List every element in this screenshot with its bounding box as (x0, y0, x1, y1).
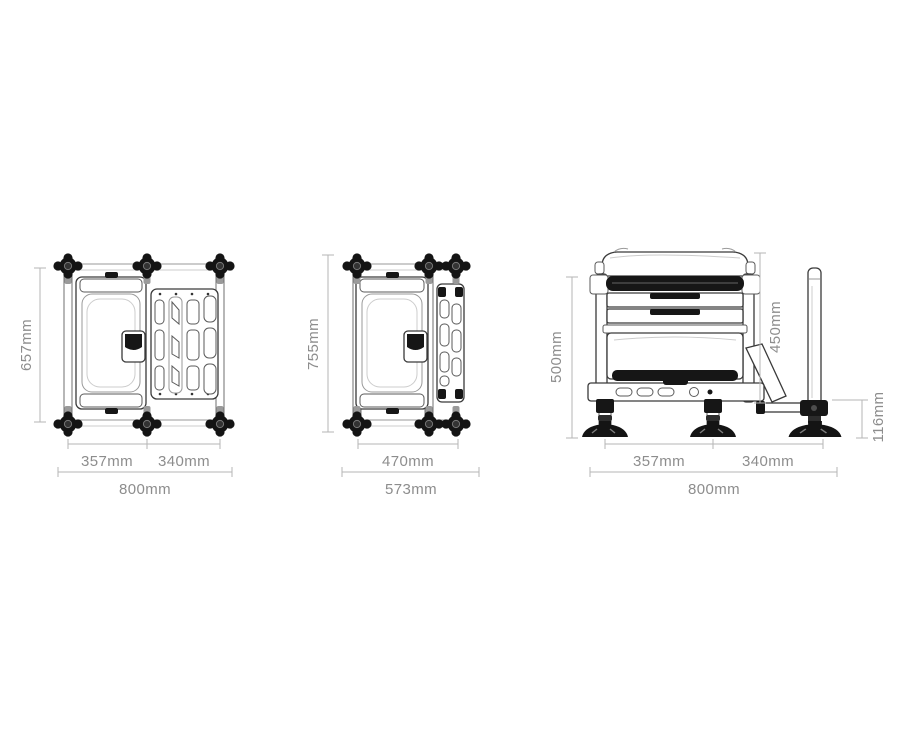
chassis-rail (588, 378, 764, 401)
clamp-knob (441, 253, 470, 284)
clamp-knob (441, 406, 470, 437)
side-view (582, 248, 841, 437)
dim-label-height: 755mm (305, 318, 322, 370)
dim-label-span-left: 357mm (633, 453, 685, 470)
drawer-bottom (607, 309, 743, 323)
tray-handle (122, 331, 145, 362)
tray-unit (356, 272, 428, 414)
dim-label-inner-width: 470mm (382, 453, 434, 470)
clamp-knob (205, 253, 234, 284)
tray-handle (404, 331, 427, 362)
top-view-folded (342, 253, 470, 436)
drawer-top (607, 293, 743, 307)
technical-drawing: 657mm 357mm 340mm 800mm (0, 0, 900, 750)
frame-tube-left (64, 259, 72, 429)
base-unit (607, 333, 743, 381)
footplate-extended (151, 289, 218, 399)
seat-roller-bar (590, 275, 760, 294)
leg-middle (690, 399, 736, 437)
dim-label-pole-height: 450mm (767, 301, 784, 353)
footplate-folded (437, 284, 464, 402)
dim-label-height: 657mm (18, 319, 35, 371)
clamp-knob (205, 406, 234, 437)
clamp-knob (342, 406, 371, 437)
dim-label-rail-height: 116mm (870, 392, 887, 443)
dim-label-span-left: 357mm (81, 453, 133, 470)
dim-label-total-width: 800mm (688, 481, 740, 498)
dim-label-span-right: 340mm (158, 453, 210, 470)
diagram-canvas: 657mm 357mm 340mm 800mm (0, 0, 900, 750)
clamp-knob (414, 406, 443, 437)
seat-lid (595, 248, 755, 276)
dim-label-total-width: 800mm (119, 481, 171, 498)
clamp-knob (53, 406, 82, 437)
top-view-extended (53, 253, 234, 436)
leg-left (582, 399, 628, 437)
dim-label-frame-height: 500mm (548, 331, 565, 383)
clamp-knob (132, 406, 161, 437)
dim-label-total-width: 573mm (385, 481, 437, 498)
tray-unit (76, 272, 146, 414)
dim-label-span-right: 340mm (742, 453, 794, 470)
